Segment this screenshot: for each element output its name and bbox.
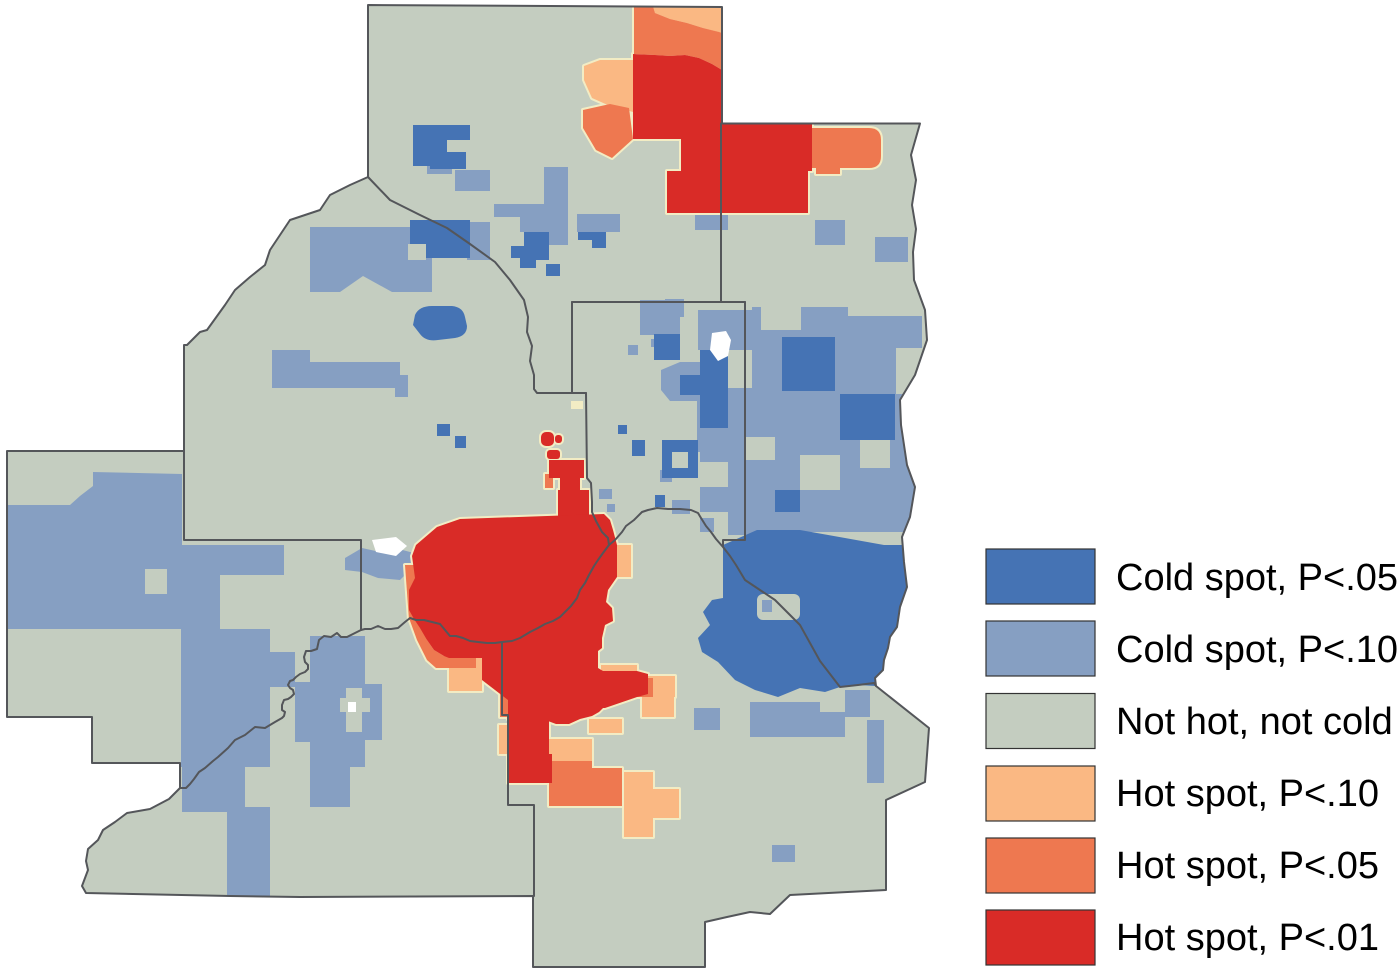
svg-text:Hot spot, P<.01: Hot spot, P<.01 [1116, 917, 1379, 959]
svg-text:Cold spot, P<.05: Cold spot, P<.05 [1116, 557, 1398, 599]
svg-text:Not hot, not cold: Not hot, not cold [1116, 701, 1393, 743]
svg-text:Hot spot, P<.10: Hot spot, P<.10 [1116, 773, 1379, 815]
svg-text:Cold spot, P<.10: Cold spot, P<.10 [1116, 629, 1398, 671]
svg-text:Hot spot, P<.05: Hot spot, P<.05 [1116, 845, 1379, 887]
